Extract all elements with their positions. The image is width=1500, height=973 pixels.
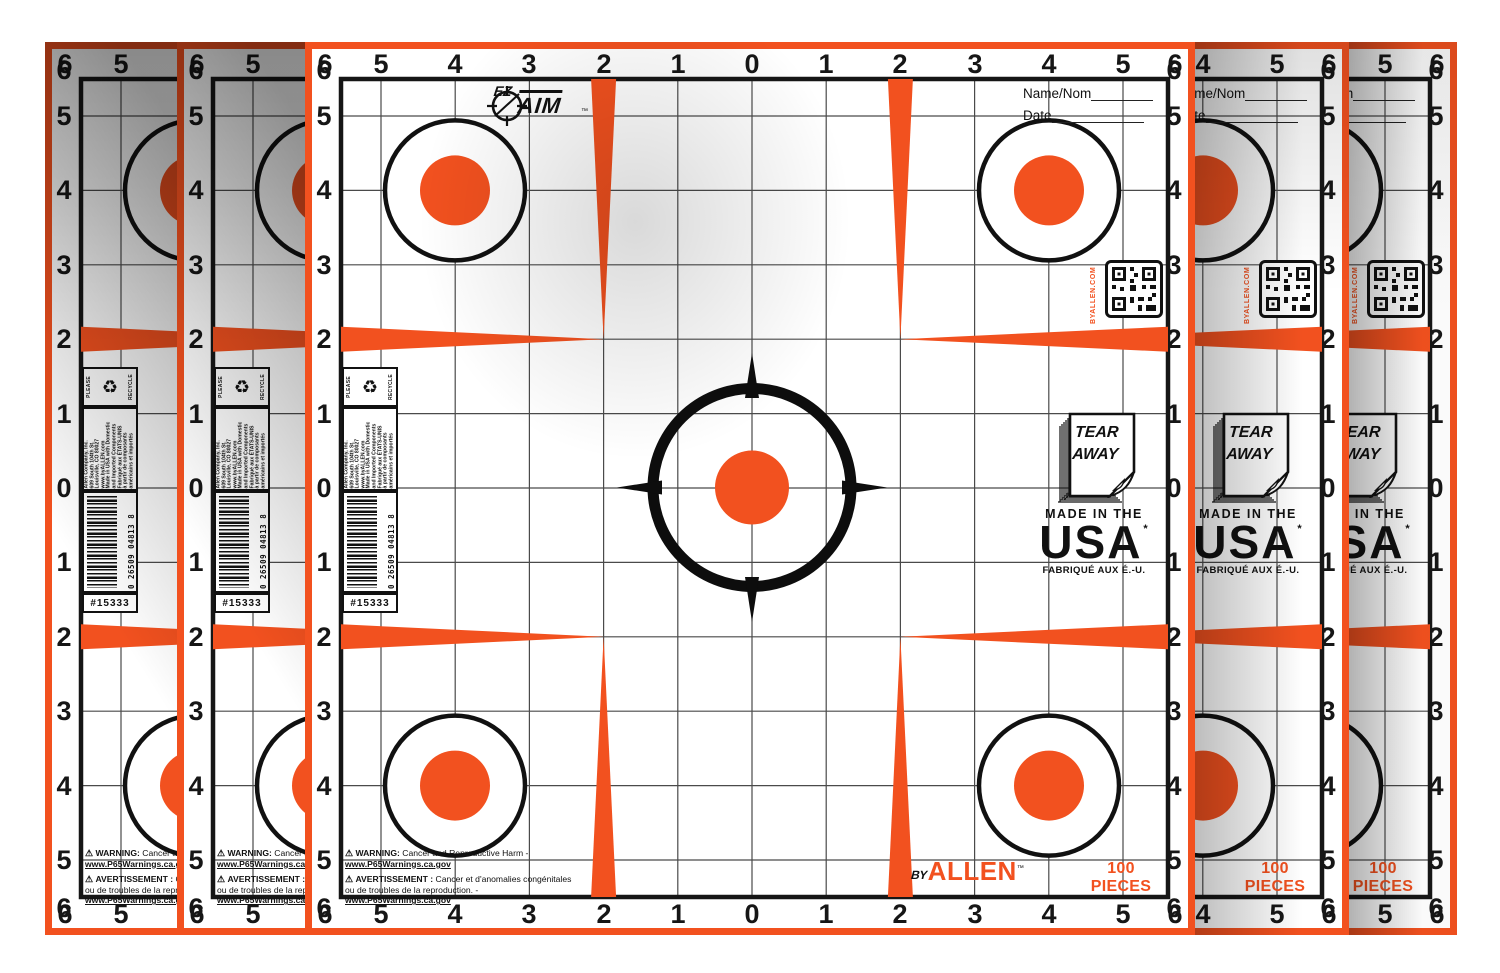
target-sheet: 6 5 4 3 2 1 0 1 2 3 4 5 6 6 5 4 3 2 1 0 … — [45, 42, 177, 935]
sheet-slot: 6 5 4 3 2 1 0 1 2 3 4 5 6 6 5 4 3 2 1 0 … — [177, 42, 306, 935]
orange-sheet-border — [45, 42, 177, 935]
sheet-layer-far-right: 6 5 4 3 2 1 0 1 2 3 4 5 6 6 5 4 3 2 1 0 … — [1349, 42, 1457, 935]
sheet-layer-left: 6 5 4 3 2 1 0 1 2 3 4 5 6 6 5 4 3 2 1 0 … — [177, 42, 306, 935]
sheet-slot: 6 5 4 3 2 1 0 1 2 3 4 5 6 6 5 4 3 2 1 0 … — [1349, 42, 1457, 935]
orange-sheet-border — [1349, 42, 1457, 935]
sheet-slot: 6 5 4 3 2 1 0 1 2 3 4 5 6 6 5 4 3 2 1 0 … — [305, 42, 1195, 935]
target-sheet: 6 5 4 3 2 1 0 1 2 3 4 5 6 6 5 4 3 2 1 0 … — [1349, 42, 1457, 935]
sheet-layer-right: 6 5 4 3 2 1 0 1 2 3 4 5 6 6 5 4 3 2 1 0 … — [1195, 42, 1349, 935]
sheet-slot: 6 5 4 3 2 1 0 1 2 3 4 5 6 6 5 4 3 2 1 0 … — [45, 42, 177, 935]
orange-sheet-border — [177, 42, 306, 935]
orange-sheet-border — [1195, 42, 1349, 935]
orange-sheet-border — [305, 42, 1195, 935]
target-sheet: 6 5 4 3 2 1 0 1 2 3 4 5 6 6 5 4 3 2 1 0 … — [305, 42, 1195, 935]
sheet-layer-far-left: 6 5 4 3 2 1 0 1 2 3 4 5 6 6 5 4 3 2 1 0 … — [45, 42, 177, 935]
target-sheet: 6 5 4 3 2 1 0 1 2 3 4 5 6 6 5 4 3 2 1 0 … — [177, 42, 306, 935]
sheet-layer-top: 6 5 4 3 2 1 0 1 2 3 4 5 6 6 5 4 3 2 1 0 … — [305, 42, 1195, 935]
sheet-slot: 6 5 4 3 2 1 0 1 2 3 4 5 6 6 5 4 3 2 1 0 … — [1195, 42, 1349, 935]
product-image-stage: 6 5 4 3 2 1 0 1 2 3 4 5 6 6 5 4 3 2 1 0 … — [0, 0, 1500, 973]
target-sheet: 6 5 4 3 2 1 0 1 2 3 4 5 6 6 5 4 3 2 1 0 … — [1195, 42, 1349, 935]
